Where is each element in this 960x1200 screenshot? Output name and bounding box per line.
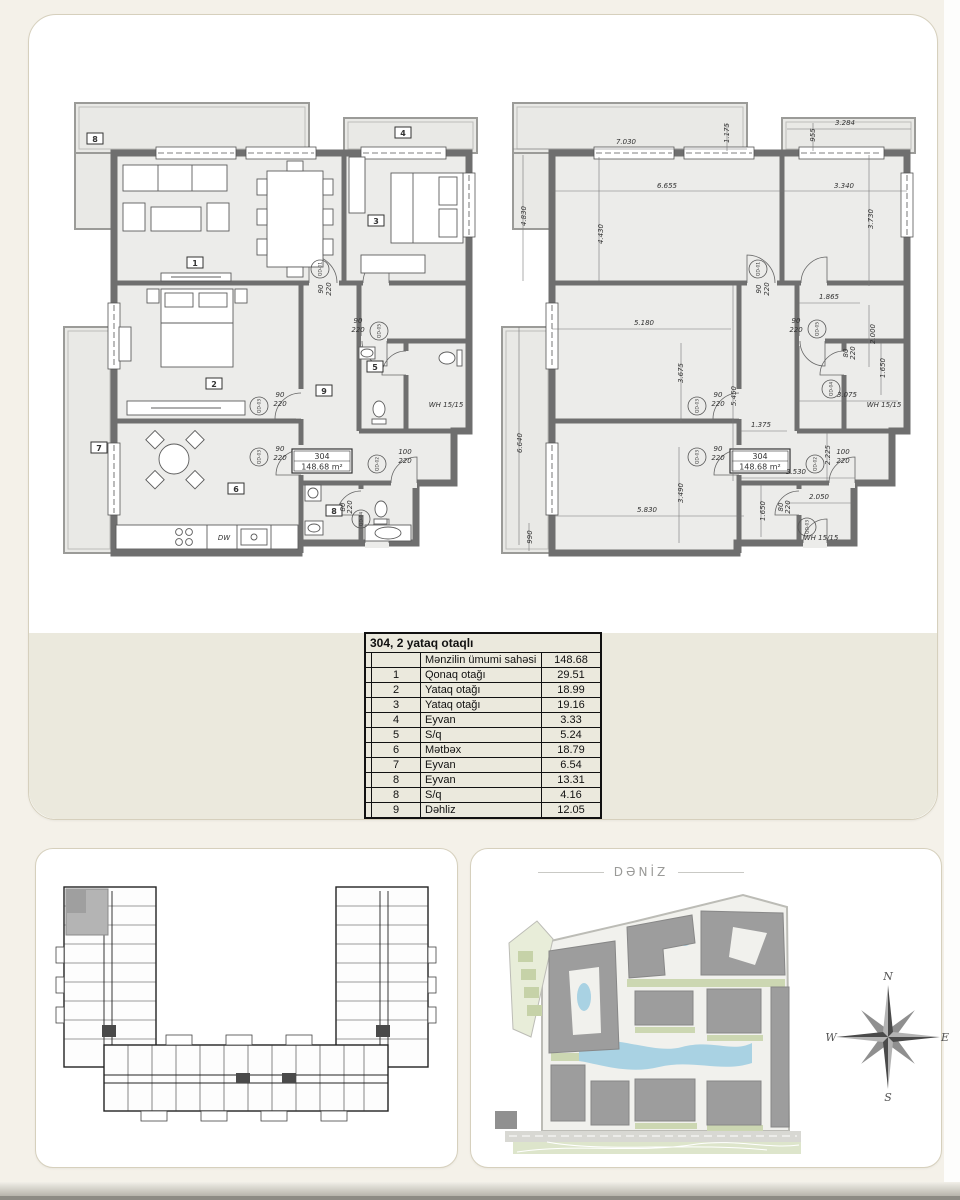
plan-label: 1.650 <box>879 357 887 378</box>
plan-label: 6.655 <box>657 182 678 190</box>
plan-label: 220 <box>836 457 850 465</box>
plan-label: 90 <box>317 284 325 293</box>
plan-label: 4 <box>400 129 406 138</box>
plan-label: 8 <box>331 507 337 516</box>
plan-label: 90 <box>276 445 285 453</box>
table-row: 8S/q4.16 <box>365 788 601 803</box>
table-row: 9Dəhliz12.05 <box>365 803 601 819</box>
plan-label: 5.830 <box>637 506 658 514</box>
plan-label: 90 <box>792 317 801 325</box>
plan-label: 3 <box>373 217 379 226</box>
door-tag-label: QD-03 <box>695 450 701 464</box>
plan-label: 6 <box>233 485 239 494</box>
plan-label: 1.175 <box>723 122 731 143</box>
plan-label: 2 <box>211 380 217 389</box>
compass-west: W <box>825 1031 838 1044</box>
table-title-row: 304, 2 yataq otaqlı <box>365 633 601 653</box>
plan-label: 3.284 <box>835 119 855 127</box>
plan-label: 90 <box>714 391 723 399</box>
plan-label: 7 <box>96 444 102 453</box>
compass-south: S <box>884 1091 892 1104</box>
table-row: 5S/q5.24 <box>365 728 601 743</box>
door-tag-label: QD-02 <box>375 457 381 471</box>
door-tag-label: QD-01 <box>756 262 762 276</box>
building-keyplan-panel <box>35 848 458 1168</box>
plan-label: WH 15/15 <box>804 534 839 542</box>
siteplan-panel: DƏNİZ <box>470 848 942 1168</box>
door-tag-label: QD-02 <box>813 457 819 471</box>
door-tag-label: QD-01 <box>318 262 324 276</box>
plan-label: 5.180 <box>634 319 655 327</box>
door-tag-label: QD-03 <box>257 399 263 413</box>
plan-label: 2.225 <box>824 444 832 465</box>
page-footer <box>0 1182 960 1200</box>
plan-label: WH 15/15 <box>867 401 902 409</box>
compass-north: N <box>882 970 893 983</box>
plan-label: 3.675 <box>677 362 685 383</box>
left-rule <box>538 872 604 873</box>
area-table: 304, 2 yataq otaqlı Mənzilin ümumi sahəs… <box>364 632 602 819</box>
door-tag-label: QD-05 <box>377 324 383 338</box>
compass-east: E <box>940 1031 949 1044</box>
plan-label: 220 <box>789 326 803 334</box>
plan-label: 90 <box>276 391 285 399</box>
plan-label: 90 <box>714 445 723 453</box>
right-rule <box>678 872 744 873</box>
table-row: 7Eyvan6.54 <box>365 758 601 773</box>
plan-label: 220 <box>784 500 792 514</box>
plan-label: 220 <box>711 454 725 462</box>
plan-label: 955 <box>809 128 817 142</box>
furnished-floorplan: 304 148.68 m² <box>61 91 485 561</box>
plan-label: 220 <box>351 326 365 334</box>
plan-label: 220 <box>398 457 412 465</box>
door-tag-label: QD-03 <box>257 450 263 464</box>
plan-label: 4.830 <box>520 205 528 226</box>
table-row: 1Qonaq otağı29.51 <box>365 668 601 683</box>
plan-label: 3.730 <box>867 208 875 229</box>
plan-label: 220 <box>273 400 287 408</box>
table-row: 4Eyvan3.33 <box>365 713 601 728</box>
table-title: 304, 2 yataq otaqlı <box>365 633 601 653</box>
door-tag-label: QD-04 <box>829 382 835 396</box>
plan-label: 1.650 <box>759 500 767 521</box>
plan-label: 220 <box>849 346 857 360</box>
plan-label: 5 <box>372 363 378 372</box>
plan-label: 3.075 <box>837 391 858 399</box>
plan-label: 2.000 <box>869 323 877 344</box>
plan-label: 220 <box>711 400 725 408</box>
table-row: 3Yataq otağı19.16 <box>365 698 601 713</box>
table-row: 8Eyvan13.31 <box>365 773 601 788</box>
total-area-value: 148.68 <box>542 653 602 668</box>
door-tag-label: QD-03 <box>805 520 811 534</box>
plan-label: 8 <box>92 135 98 144</box>
plan-label: 100 <box>836 448 850 456</box>
plan-label: 100 <box>398 448 412 456</box>
plan-label: 220 <box>763 282 771 296</box>
table-row: 6Mətbəx18.79 <box>365 743 601 758</box>
door-tag-label: QD-05 <box>815 322 821 336</box>
table-row: 2Yataq otağı18.99 <box>365 683 601 698</box>
plan-label: 90 <box>354 317 363 325</box>
plan-label: 7.030 <box>616 138 637 146</box>
plan-label: 3.340 <box>834 182 855 190</box>
plan-label: 220 <box>346 500 354 514</box>
total-area-label: Mənzilin ümumi sahəsi <box>421 653 542 668</box>
floorplan-panel: 304 148.68 m² <box>28 14 938 820</box>
plan-label: 220 <box>325 282 333 296</box>
plan-label: WH 15/15 <box>429 401 464 409</box>
plan-label: 9 <box>321 387 327 396</box>
dimensioned-floorplan: QD-01QD-05QD-04QD-03QD-03QD-02QD-03 7.03… <box>499 91 923 561</box>
compass-rose: N E S W <box>823 969 953 1105</box>
plan-label: 3.530 <box>786 468 807 476</box>
plan-label: DW <box>218 534 231 542</box>
plan-label: 3.490 <box>677 482 685 503</box>
door-tag-label: QD-03 <box>695 399 701 413</box>
brochure-page: 304 148.68 m² <box>0 0 960 1200</box>
plan-label: 90 <box>755 284 763 293</box>
table-header-row: Mənzilin ümumi sahəsi 148.68 <box>365 653 601 668</box>
plan-label: 1.865 <box>819 293 840 301</box>
sea-direction: DƏNİZ <box>491 865 791 879</box>
plan-label: 1 <box>192 259 198 268</box>
plan-label: 990 <box>526 530 534 544</box>
plan-label: 5.450 <box>730 385 738 406</box>
plan-label: 1.375 <box>751 421 772 429</box>
plan-label: 220 <box>273 454 287 462</box>
plan-label: 2.050 <box>809 493 830 501</box>
plan-label: 6.640 <box>516 432 524 453</box>
plan-label: 4.430 <box>597 223 605 244</box>
building-keyplan <box>46 877 446 1139</box>
site-masterplan <box>487 885 827 1155</box>
door-tag-label: QD-04 <box>359 512 365 526</box>
sea-label: DƏNİZ <box>614 865 668 879</box>
